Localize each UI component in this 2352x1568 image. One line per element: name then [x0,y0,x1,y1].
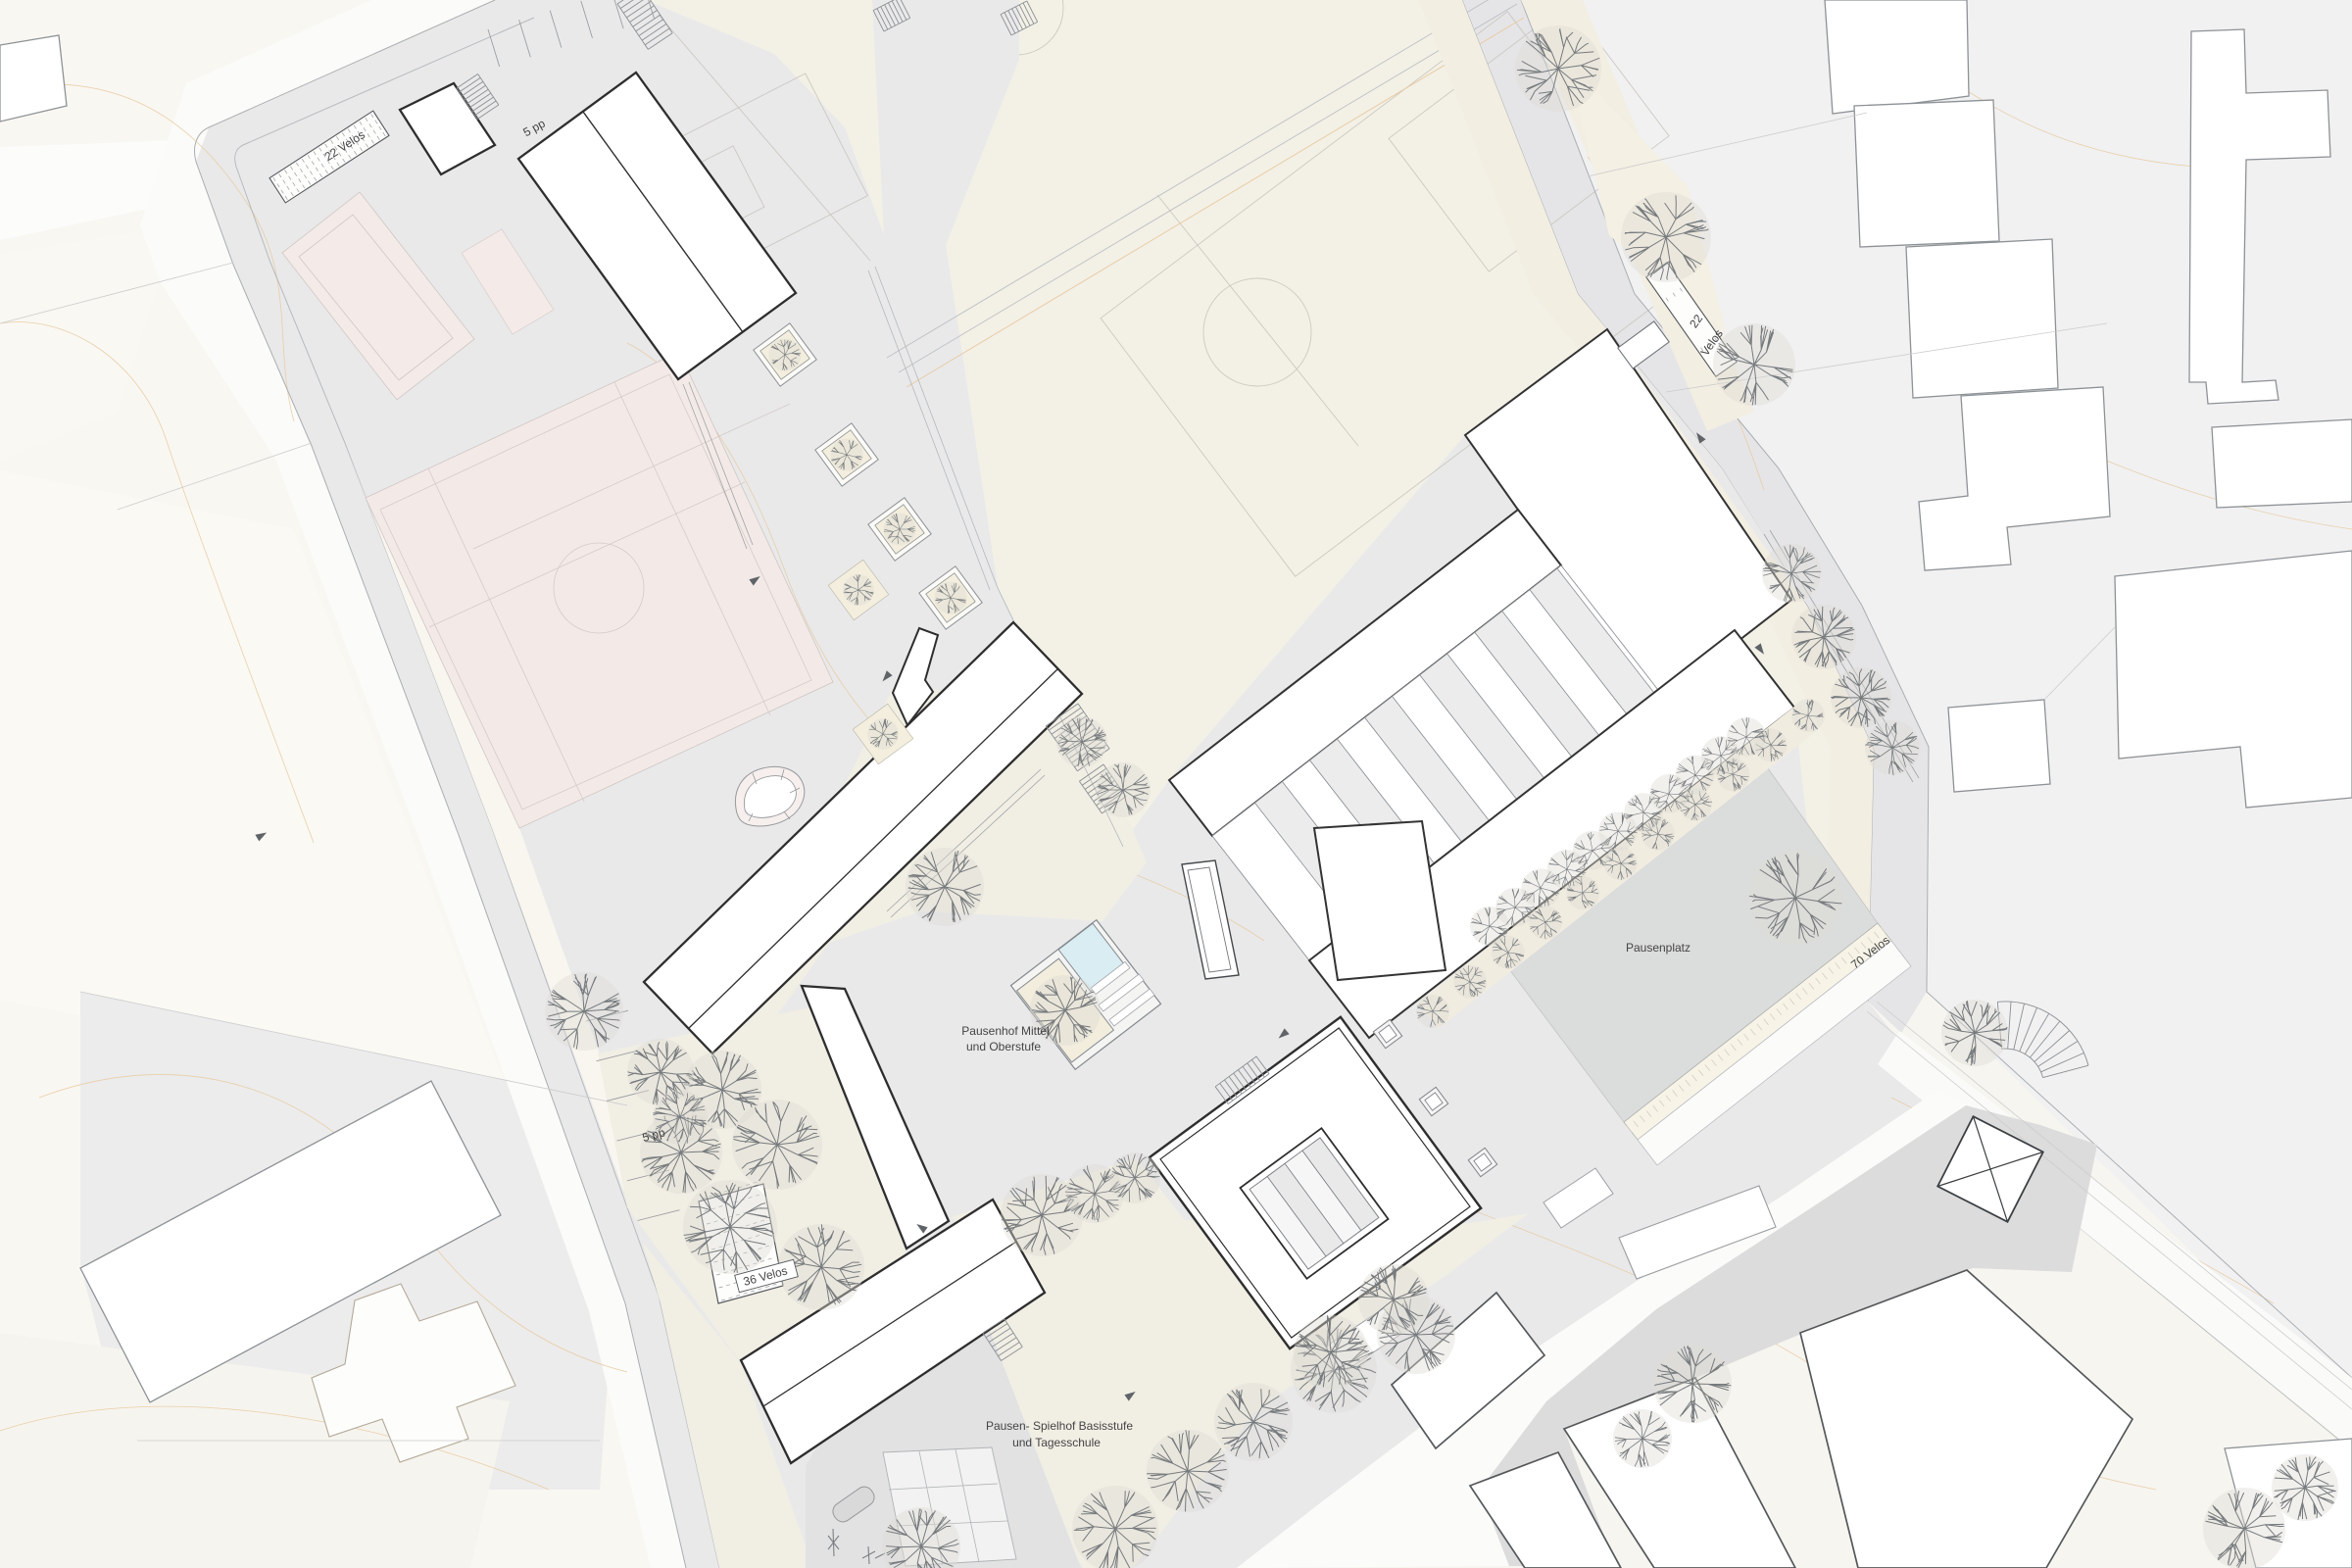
svg-text:Pausenhof Mittel: Pausenhof Mittel [961,1024,1049,1038]
svg-text:und Tagesschule: und Tagesschule [1012,1436,1101,1449]
svg-text:Pausenplatz: Pausenplatz [1626,941,1690,955]
svg-text:und Oberstufe: und Oberstufe [966,1040,1041,1053]
svg-text:Pausen- Spielhof Basisstufe: Pausen- Spielhof Basisstufe [986,1419,1133,1433]
